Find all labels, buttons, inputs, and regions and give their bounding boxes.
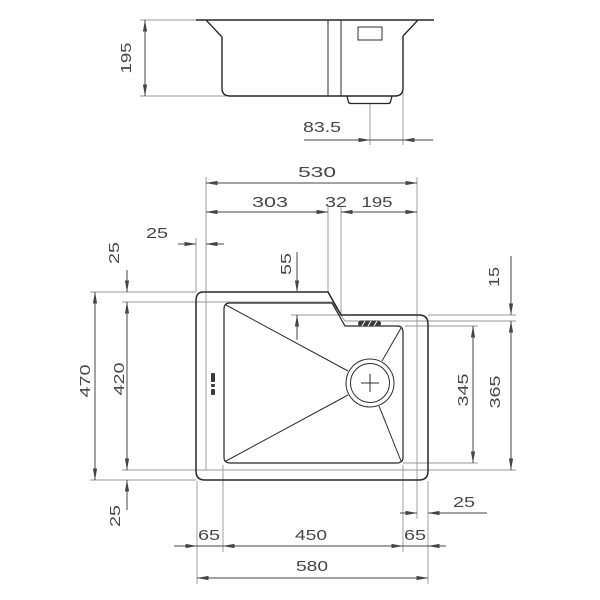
brand-mark	[211, 373, 215, 395]
drain-fitting	[347, 96, 392, 104]
dim-label-drain-offset: 83.5	[303, 119, 341, 136]
bowl-slope-line	[382, 328, 401, 361]
technical-drawing-page: 195 83.5	[0, 0, 600, 600]
dim-label-offset-top-v: 25	[106, 242, 123, 264]
sink-rim-outline	[196, 292, 428, 480]
dim-label-cutout-width: 530	[298, 164, 336, 181]
countertop-cutout-outline	[206, 302, 417, 470]
dim-label-step-depth: 55	[278, 253, 295, 275]
dim-label-cutout-depth: 420	[111, 363, 128, 396]
side-right-chamfer	[403, 20, 418, 36]
dim-label-cutout-left: 303	[252, 194, 288, 211]
dim-label-depth: 195	[118, 43, 135, 74]
faucet-hole	[358, 27, 382, 40]
dim-label-offset-top-h: 25	[146, 225, 168, 242]
dim-label-cutout-step: 32	[325, 194, 347, 211]
dim-label-cutout-right: 195	[362, 194, 393, 211]
top-view: 530 303 32 195 25 25 470 420 25 55 15 34…	[77, 164, 516, 584]
dim-label-offset-bottom: 25	[107, 505, 124, 527]
side-left-chamfer	[206, 20, 222, 37]
sink-technical-drawing: 195 83.5	[0, 0, 600, 600]
dim-label-overall-width: 580	[296, 558, 328, 575]
dim-label-margin-left: 65	[198, 527, 220, 544]
dim-label-bowl-depth: 345	[455, 374, 472, 407]
overflow-slot	[358, 321, 381, 327]
side-view: 195 83.5	[118, 20, 434, 145]
dim-label-offset-right: 25	[453, 494, 475, 511]
dim-label-overall-depth: 470	[77, 365, 94, 398]
dim-label-ledge-offset: 15	[486, 267, 503, 287]
bowl-slope-line	[379, 406, 401, 461]
dim-label-ledge-cutout-depth: 365	[487, 376, 504, 409]
bowl-slope-line	[226, 395, 348, 461]
dim-label-bowl-width: 450	[295, 527, 327, 544]
side-bowl-profile	[222, 36, 403, 96]
dim-label-margin-right: 65	[404, 527, 426, 544]
